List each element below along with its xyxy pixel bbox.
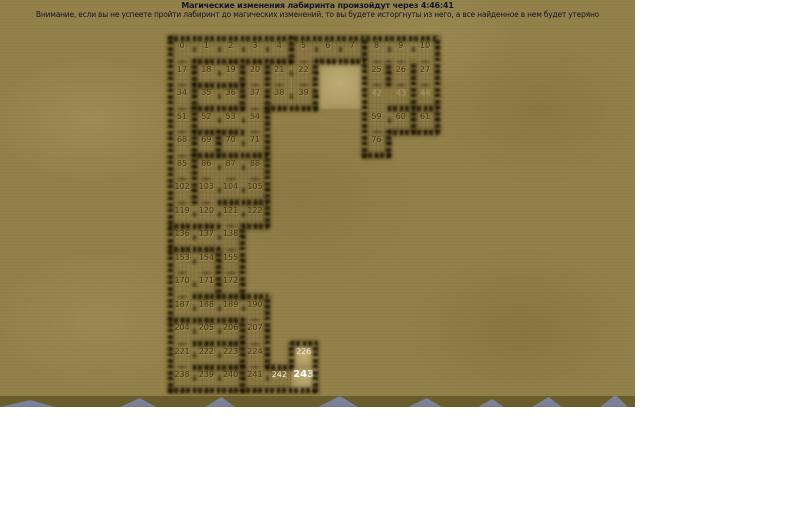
mountain-peak-icon [205,397,235,407]
maze-cell-171: 171 [194,273,218,297]
maze-cell-242: 242 [267,367,291,391]
maze-cell-223: 223 [219,344,243,368]
maze-wall [242,224,268,229]
maze-cell-61: 61 [413,109,437,133]
maze-cell-6: 6 [316,38,340,62]
maze-cell-172: 172 [219,273,243,297]
maze-cell-121: 121 [219,203,243,227]
maze-wall [168,37,173,392]
maze-cell-current: 243 [292,367,316,391]
maze-cell-70: 70 [219,132,243,156]
maze-wall [265,61,270,110]
maze-cell-1: 1 [194,38,218,62]
maze-wall [218,200,269,205]
mountain-peak-icon [478,399,504,407]
maze-cell-60: 60 [389,109,413,133]
maze-wall [265,296,270,369]
maze-wall [193,106,244,111]
maze-cell-39: 39 [292,85,316,109]
maze-cell-43: 43 [389,85,413,109]
maze-cell-222: 222 [194,344,218,368]
maze-wall [216,249,221,298]
maze-wall [388,106,439,111]
maze-cell-8: 8 [364,38,388,62]
maze-cell-224: 224 [243,344,267,368]
maze-cell-51: 51 [170,109,194,133]
maze-cell-240: 240 [219,367,243,391]
maze-cell-71: 71 [243,132,267,156]
maze-cell-9: 9 [389,38,413,62]
maze-wall [363,153,389,158]
maze-cell-34: 34 [170,85,194,109]
maze-cell-136: 136 [170,226,194,250]
maze-wall [289,37,294,63]
maze-cell-2: 2 [219,38,243,62]
maze-cell-104: 104 [219,179,243,203]
maze-cell-19: 19 [219,62,243,86]
maze-cell-76: 76 [364,132,388,156]
maze-wall [169,224,220,229]
bottom-panel-edge [0,395,635,407]
maze-cell-0: 0 [170,38,194,62]
page: Магические изменения лабиринта произойду… [0,0,793,510]
maze-cell-21: 21 [267,62,291,86]
maze-cell-36: 36 [219,85,243,109]
maze-cell-102: 102 [170,179,194,203]
maze-cell-68: 68 [170,132,194,156]
maze-cell-120: 120 [194,203,218,227]
maze-wall [193,153,268,158]
maze-wall [240,319,245,368]
game-screen: Магические изменения лабиринта произойду… [0,0,635,407]
maze-cell-42: 42 [364,85,388,109]
maze-cell-226: 226 [292,344,316,368]
maze-cell-52: 52 [194,109,218,133]
maze-cell-7: 7 [340,38,364,62]
maze-cell-204: 204 [170,320,194,344]
maze-cell-25: 25 [364,62,388,86]
maze-wall [265,108,270,228]
maze-cell-241: 241 [243,367,267,391]
maze-wall [315,59,366,64]
maze-cell-154: 154 [194,250,218,274]
maze-cell-122: 122 [243,203,267,227]
maze-map: 0123456789101718192021222526273435363738… [0,0,635,407]
maze-cell-69: 69 [194,132,218,156]
maze-cell-22: 22 [292,62,316,86]
maze-cell-53: 53 [219,109,243,133]
mountain-peak-icon [318,396,358,407]
maze-wall [240,366,245,392]
maze-cell-137: 137 [194,226,218,250]
mountain-peak-icon [120,398,156,407]
maze-cell-103: 103 [194,179,218,203]
maze-wall [193,294,244,299]
maze-cell-188: 188 [194,297,218,321]
maze-cell-18: 18 [194,62,218,86]
mountain-peak-icon [600,395,628,407]
maze-cell-155: 155 [219,250,243,274]
maze-cell-27: 27 [413,62,437,86]
maze-wall [169,36,438,41]
maze-cell-105: 105 [243,179,267,203]
maze-cell-37: 37 [243,85,267,109]
maze-cell-153: 153 [170,250,194,274]
maze-wall [289,343,294,369]
maze-wall [313,61,318,110]
maze-cell-138: 138 [219,226,243,250]
maze-cell-4: 4 [267,38,291,62]
maze-cell-207: 207 [243,320,267,344]
maze-cell-17: 17 [170,62,194,86]
maze-cell-221: 221 [170,344,194,368]
maze-cell-20: 20 [243,62,267,86]
maze-cell-238: 238 [170,367,194,391]
maze-cell-3: 3 [243,38,267,62]
maze-wall [240,225,245,298]
maze-wall [192,155,197,204]
mountain-peak-icon [408,398,442,407]
maze-cell-119: 119 [170,203,194,227]
maze-cell-88: 88 [243,156,267,180]
maze-cell-35: 35 [194,85,218,109]
maze-cell-87: 87 [219,156,243,180]
maze-cell-38: 38 [267,85,291,109]
maze-cell-86: 86 [194,156,218,180]
maze-wall [193,365,244,370]
maze-cell-44: 44 [413,85,437,109]
maze-wall [169,247,220,252]
maze-cell-26: 26 [389,62,413,86]
maze-cell-10: 10 [413,38,437,62]
maze-cell-189: 189 [219,297,243,321]
maze-wall [193,341,244,346]
maze-cell-190: 190 [243,297,267,321]
mountain-peak-icon [532,397,562,407]
maze-wall [435,37,440,133]
maze-cell-5: 5 [292,38,316,62]
maze-cell-239: 239 [194,367,218,391]
maze-cell-54: 54 [243,109,267,133]
mountain-peak-icon [0,400,55,407]
maze-cell-205: 205 [194,320,218,344]
maze-cell-85: 85 [170,156,194,180]
maze-wall [386,61,391,87]
maze-wall [193,83,244,88]
maze-wall [411,61,416,134]
maze-wall [313,343,318,392]
maze-wall [169,318,244,323]
maze-cell-206: 206 [219,320,243,344]
maze-wall [266,106,317,111]
maze-cell-59: 59 [364,109,388,133]
maze-wall [362,37,367,157]
maze-cell-170: 170 [170,273,194,297]
maze-open-area [316,62,365,109]
maze-cell-187: 187 [170,297,194,321]
